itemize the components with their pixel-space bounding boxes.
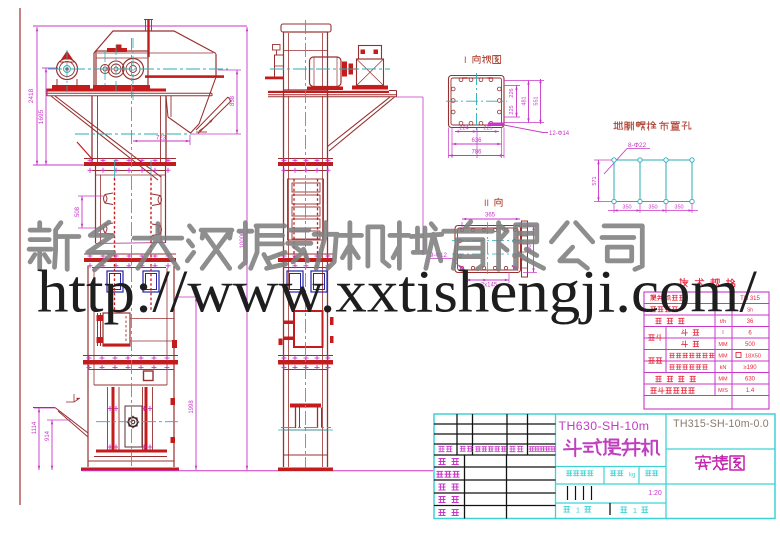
svg-text:kg: kg [629, 473, 635, 479]
svg-text:12-Φ14: 12-Φ14 [549, 131, 570, 137]
svg-text:914: 914 [45, 430, 51, 441]
svg-text:TH630-SH-10m: TH630-SH-10m [559, 419, 650, 433]
svg-text:365: 365 [485, 213, 496, 219]
svg-text:1: 1 [633, 506, 637, 515]
svg-text:l: l [722, 330, 723, 336]
svg-text:II: II [484, 198, 489, 208]
svg-text:http://www.xxtishengji.com/: http://www.xxtishengji.com/ [37, 259, 757, 325]
svg-text:571: 571 [592, 176, 598, 185]
svg-text:1: 1 [576, 506, 580, 515]
svg-text:1.4: 1.4 [746, 388, 755, 394]
svg-text:kN: kN [720, 365, 727, 371]
svg-text:786: 786 [471, 149, 482, 155]
svg-text:2418: 2418 [28, 88, 35, 103]
svg-text:636: 636 [471, 138, 482, 144]
svg-text:500: 500 [745, 342, 756, 348]
svg-text:481: 481 [522, 96, 528, 105]
svg-text:551: 551 [534, 96, 540, 105]
svg-text:350: 350 [622, 205, 631, 211]
svg-text:723: 723 [156, 136, 167, 142]
svg-text:MM: MM [718, 342, 728, 348]
svg-text:224: 224 [459, 126, 468, 132]
svg-text:1114: 1114 [32, 421, 38, 434]
svg-text:1695: 1695 [38, 109, 45, 124]
svg-text:1:20: 1:20 [648, 490, 662, 497]
svg-text:630: 630 [745, 377, 756, 383]
svg-text:18X50: 18X50 [745, 354, 761, 360]
svg-text:350: 350 [674, 205, 683, 211]
svg-text:225: 225 [483, 126, 492, 132]
svg-text:1998: 1998 [189, 400, 195, 414]
svg-text:508: 508 [75, 206, 81, 217]
svg-text:858: 858 [230, 95, 236, 106]
svg-text:M/S: M/S [718, 388, 728, 394]
svg-text:MM: MM [718, 353, 728, 359]
svg-text:8-Φ22: 8-Φ22 [628, 142, 647, 149]
svg-text:I: I [464, 55, 467, 65]
svg-text:350: 350 [648, 205, 657, 211]
svg-text:226: 226 [509, 88, 515, 97]
svg-text:TH315-SH-10m-0.0: TH315-SH-10m-0.0 [673, 418, 769, 430]
svg-text:≥190: ≥190 [743, 365, 757, 371]
svg-text:225: 225 [509, 105, 515, 114]
svg-text:MM: MM [718, 376, 728, 382]
